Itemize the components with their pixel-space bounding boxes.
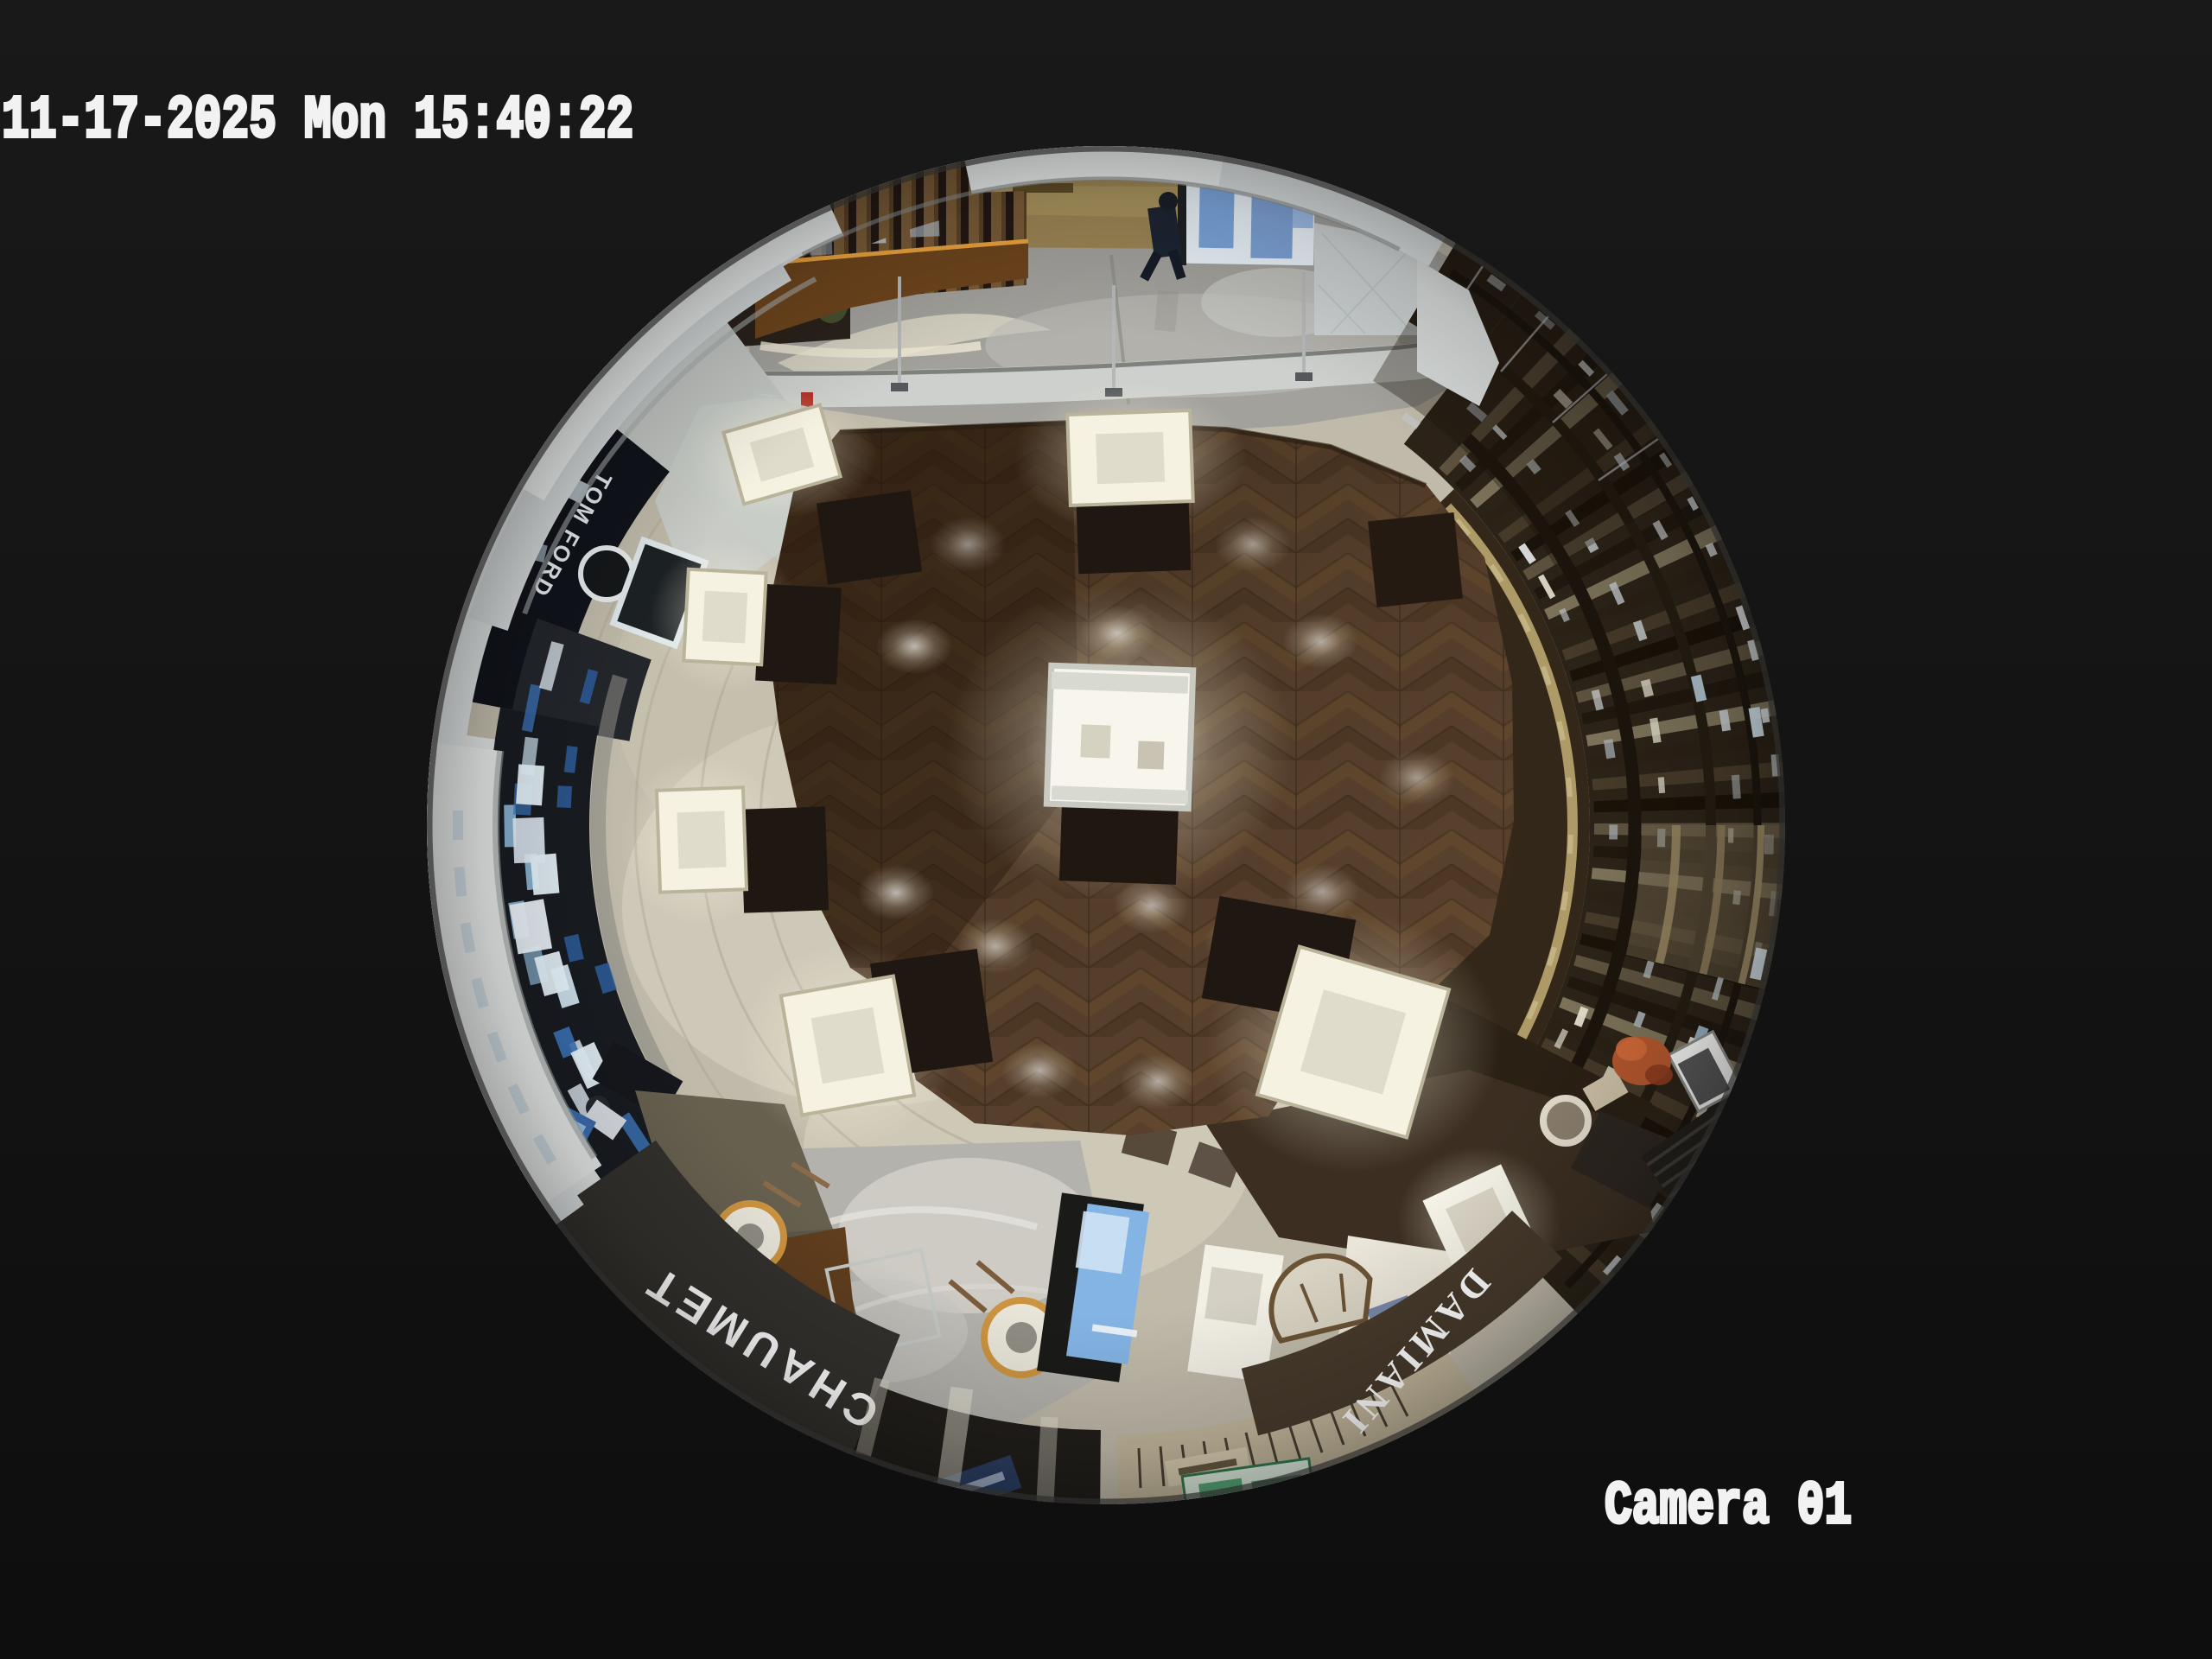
svg-text:11-17-2025 Mon 15:40:22: 11-17-2025 Mon 15:40:22 xyxy=(2,87,633,156)
svg-text:Camera 01: Camera 01 xyxy=(1605,1473,1852,1541)
